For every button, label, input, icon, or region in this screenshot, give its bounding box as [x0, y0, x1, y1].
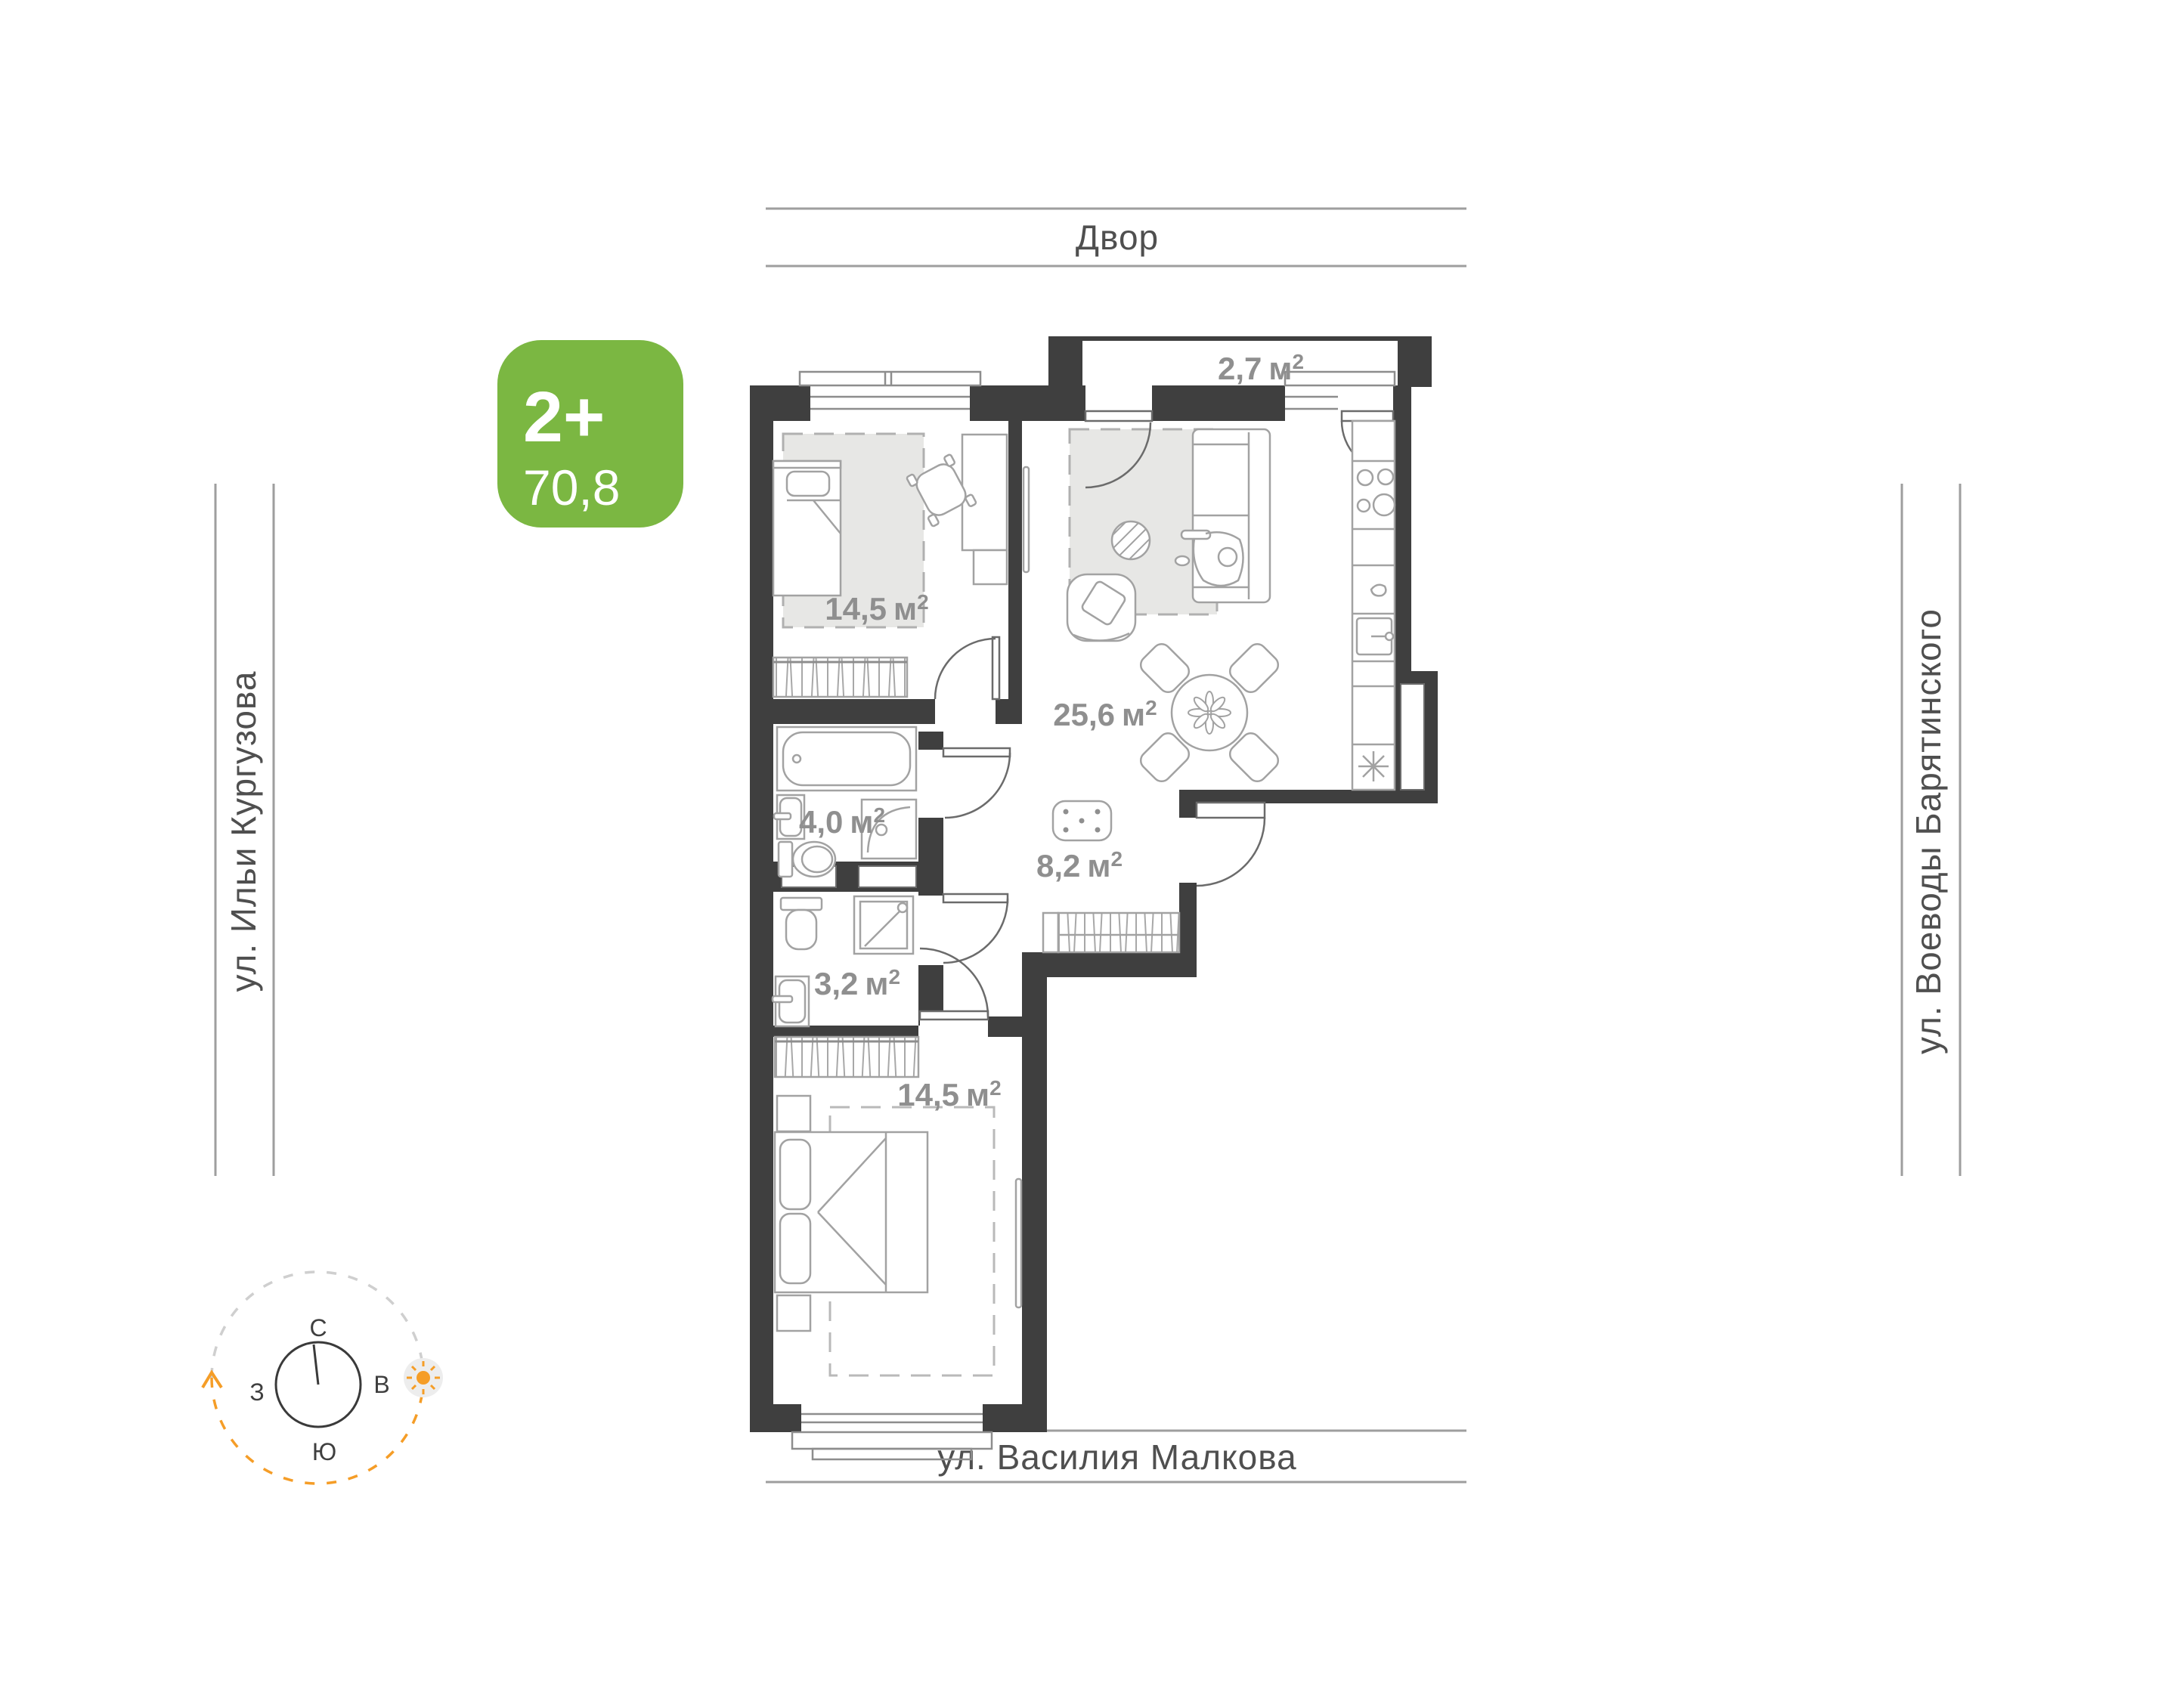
dining-set [1137, 640, 1282, 785]
dining-table [1172, 675, 1247, 750]
street-right-label: ул. Воеводы Барятинского [1909, 608, 1948, 1054]
compass-west: З [249, 1378, 264, 1406]
pillow [787, 472, 829, 496]
apartment-badge: 2+ 70,8 [497, 340, 683, 528]
room-label-living: 25,6м2 [1053, 696, 1157, 732]
badge-rooms-label: 2+ [523, 377, 605, 457]
shower-room-sink [773, 976, 809, 1026]
floorplan-card: Двор ул. Василия Малкова ул. Ильи Кургуз… [0, 0, 2177, 1708]
sun-icon [404, 1358, 443, 1397]
nightstand-2 [777, 1295, 810, 1331]
compass-south: Ю [312, 1438, 336, 1465]
street-right: ул. Воеводы Барятинского [1902, 484, 1960, 1176]
street-bottom: ул. Василия Малкова [766, 1431, 1466, 1482]
badge-area-value: 70,8 [523, 459, 620, 515]
wardrobe [773, 658, 907, 697]
room-label-bedroom-1: 14,5м2 [825, 590, 928, 627]
room-label-bathroom: 4,0м2 [799, 803, 885, 840]
street-top: Двор [766, 209, 1466, 266]
shower-room-fixtures [773, 896, 913, 1026]
bedroom-1-door [935, 637, 999, 724]
toilet-2 [781, 898, 822, 949]
compass-north: С [309, 1314, 327, 1341]
wardrobe-2 [775, 1037, 918, 1077]
street-left-label: ул. Ильи Кургузова [224, 670, 263, 992]
oven [1357, 618, 1393, 654]
pillow-1 [780, 1140, 810, 1209]
bathroom-fixtures [774, 727, 916, 877]
room-label-balcony: 2,7м2 [1218, 350, 1304, 386]
kitchen-sink [1371, 585, 1386, 596]
bedroom-1-window [800, 372, 980, 421]
tv-panel [1023, 467, 1029, 572]
armchair [1067, 574, 1135, 641]
compass-east: В [373, 1371, 389, 1398]
bathroom-door [918, 748, 1010, 818]
compass: С В З Ю [203, 1272, 443, 1484]
room-label-bedroom-2: 14,5м2 [897, 1076, 1001, 1112]
hall-wardrobe [1058, 913, 1179, 952]
floorplan: 14,5м2 25,6м2 2,7м2 4,0м2 8,2м2 3,2м2 14… [750, 337, 1438, 1459]
pillow-2 [780, 1214, 810, 1283]
shower-room-door [918, 894, 1008, 964]
hall-cabinet [1043, 913, 1058, 952]
mirror [1016, 1179, 1021, 1307]
desk-cabinet [974, 550, 1007, 584]
room-label-shower-room: 3,2м2 [814, 965, 900, 1001]
fridge [1358, 751, 1389, 781]
toilet [779, 842, 835, 877]
desk [962, 435, 1007, 550]
kitchen-units [1352, 421, 1395, 790]
shower-cabin [854, 896, 913, 954]
room-label-hallway: 8,2м2 [1036, 847, 1123, 883]
coffee-table [1112, 521, 1150, 559]
nightstand-1 [777, 1096, 810, 1131]
street-top-label: Двор [1076, 218, 1159, 257]
street-left: ул. Ильи Кургузова [215, 484, 274, 1176]
